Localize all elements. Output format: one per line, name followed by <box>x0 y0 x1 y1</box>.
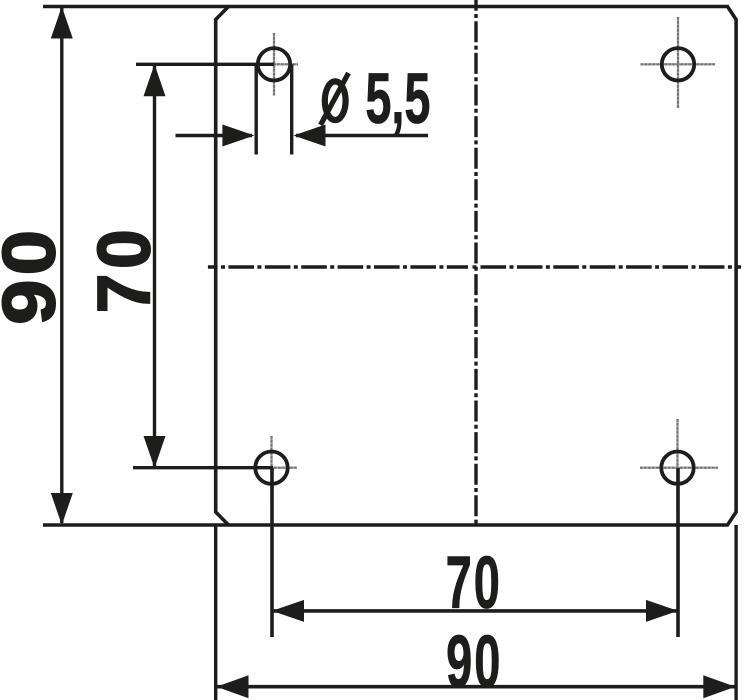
svg-text:70: 70 <box>83 225 166 313</box>
svg-text:5,5: 5,5 <box>365 59 430 138</box>
svg-text:70: 70 <box>446 542 502 624</box>
svg-text:90: 90 <box>446 621 502 700</box>
svg-text:90: 90 <box>0 226 71 325</box>
